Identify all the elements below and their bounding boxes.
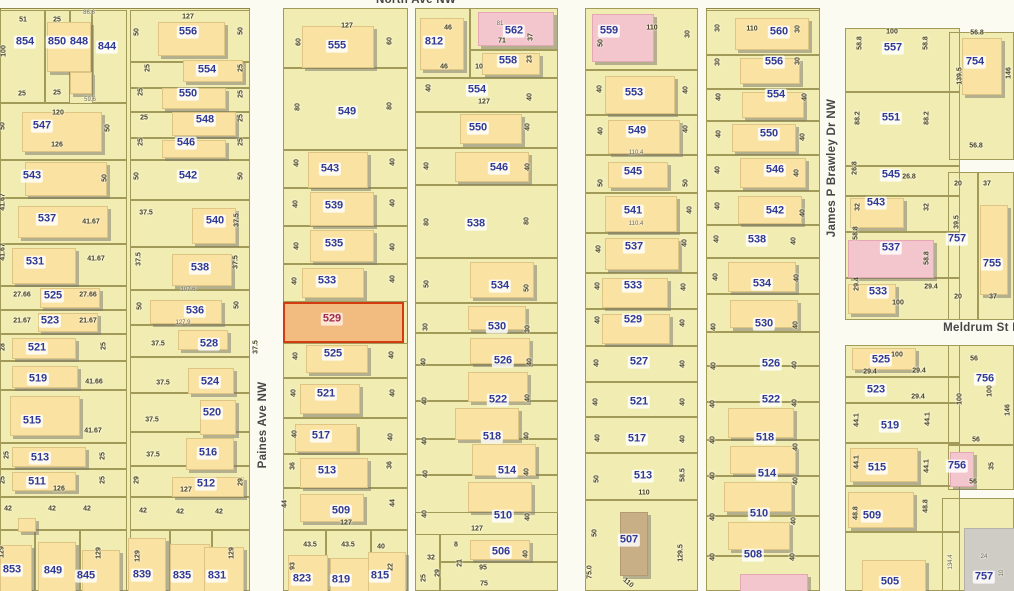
dimension-label: 43.5 bbox=[303, 542, 317, 549]
parcel-number: 512 bbox=[195, 478, 217, 491]
dimension-label: 127 bbox=[341, 23, 353, 30]
dimension-label: 40 bbox=[710, 553, 717, 561]
parcel-number: 531 bbox=[24, 256, 46, 269]
dimension-label: 26.8 bbox=[852, 161, 859, 175]
dimension-label: 40 bbox=[792, 361, 799, 369]
dimension-label: 36 bbox=[387, 461, 394, 469]
dimension-label: 41.67 bbox=[84, 428, 102, 435]
parcel-number: 520 bbox=[201, 407, 223, 420]
dimension-label: 40 bbox=[715, 166, 722, 174]
dimension-label: 40 bbox=[525, 123, 532, 131]
dimension-label: 25 bbox=[101, 342, 108, 350]
parcel-number: 849 bbox=[42, 565, 64, 578]
parcel-number: 522 bbox=[487, 394, 509, 407]
parcel-number: 549 bbox=[336, 106, 358, 119]
dimension-label: 40 bbox=[800, 209, 807, 217]
dimension-label: 50 bbox=[594, 475, 601, 483]
parcel-number: 513 bbox=[632, 470, 654, 483]
parcel-number: 543 bbox=[319, 163, 341, 176]
parcel-number: 848 bbox=[68, 36, 90, 49]
dimension-label: 40 bbox=[802, 93, 809, 101]
building bbox=[728, 522, 790, 550]
dimension-label: 37.5 bbox=[145, 417, 159, 424]
dimension-label: 40 bbox=[594, 359, 601, 367]
dimension-label: 88.2 bbox=[855, 111, 862, 125]
dimension-label: 127 bbox=[182, 14, 194, 21]
dimension-label: 27.66 bbox=[13, 292, 31, 299]
dimension-label: 50 bbox=[134, 28, 141, 36]
dimension-label: 40 bbox=[710, 513, 717, 521]
dimension-label: 40 bbox=[527, 93, 534, 101]
parcel-number: 754 bbox=[964, 56, 986, 69]
parcel-number: 845 bbox=[75, 570, 97, 583]
dimension-label: 25 bbox=[238, 64, 245, 72]
dimension-label: 40 bbox=[680, 360, 687, 368]
parcel-number: 509 bbox=[861, 510, 883, 523]
dimension-label: 48.8 bbox=[923, 499, 930, 513]
dimension-label: 56 bbox=[969, 479, 977, 486]
parcel-number: 530 bbox=[753, 318, 775, 331]
dimension-label: 43.5 bbox=[341, 542, 355, 549]
dimension-label: 50 bbox=[134, 172, 141, 180]
dimension-label: 41.67 bbox=[87, 256, 105, 263]
building bbox=[740, 574, 808, 591]
dimension-label: 40 bbox=[293, 352, 300, 360]
dimension-label: 40 bbox=[681, 283, 688, 291]
dimension-label: 127 bbox=[478, 99, 490, 106]
dimension-label: 40 bbox=[525, 163, 532, 171]
dimension-label: 50 bbox=[105, 124, 112, 132]
dimension-label: 58.8 bbox=[924, 251, 931, 265]
dimension-label: 20 bbox=[954, 181, 962, 188]
dimension-label: 25 bbox=[4, 451, 11, 459]
dimension-label: 50 bbox=[137, 302, 144, 310]
dimension-label: 40 bbox=[683, 125, 690, 133]
dimension-label: 40 bbox=[711, 323, 718, 331]
parcel-545[interactable] bbox=[845, 166, 960, 196]
dimension-label: 30 bbox=[715, 58, 722, 66]
dimension-label: 95 bbox=[479, 565, 487, 572]
dimension-label: 60 bbox=[296, 38, 303, 46]
dimension-label: 42 bbox=[139, 508, 147, 515]
parcel-number: 554 bbox=[196, 64, 218, 77]
dimension-label: 40 bbox=[388, 433, 395, 441]
dimension-label: 40 bbox=[390, 275, 397, 283]
parcel-number: 529 bbox=[622, 314, 644, 327]
parcel-number: 546 bbox=[764, 164, 786, 177]
parcel-523[interactable] bbox=[845, 377, 960, 403]
dimension-label: 28 bbox=[0, 343, 7, 351]
dimension-label: 88.2 bbox=[924, 111, 931, 125]
dimension-label: 30 bbox=[525, 325, 532, 333]
dimension-label: 42 bbox=[4, 506, 12, 513]
parcel-map-canvas[interactable]: 8548508488445475435375315255235215195155… bbox=[0, 0, 1014, 591]
dimension-label: 24 bbox=[981, 554, 988, 560]
highlighted-parcel-number: 529 bbox=[321, 313, 343, 326]
dimension-label: 40 bbox=[716, 130, 723, 138]
parcel-number: 534 bbox=[751, 278, 773, 291]
parcel-number: 525 bbox=[42, 290, 64, 303]
parcel-number: 519 bbox=[27, 373, 49, 386]
parcel-number: 518 bbox=[481, 431, 503, 444]
parcel-number: 518 bbox=[754, 432, 776, 445]
parcel-number: 831 bbox=[206, 570, 228, 583]
parcel-number: 535 bbox=[323, 238, 345, 251]
parcel-number: 556 bbox=[763, 56, 785, 69]
dimension-label: 60 bbox=[387, 37, 394, 45]
dimension-label: 58.5 bbox=[680, 468, 687, 482]
dimension-label: 40 bbox=[426, 84, 433, 92]
parcel-number: 533 bbox=[867, 286, 889, 299]
dimension-label: 107.6 bbox=[180, 287, 195, 293]
parcel-number: 554 bbox=[466, 84, 488, 97]
parcel-number: 812 bbox=[423, 36, 445, 49]
dimension-label: 40 bbox=[390, 158, 397, 166]
parcel-number: 513 bbox=[316, 465, 338, 478]
parcel-number: 538 bbox=[465, 218, 487, 231]
dimension-label: 129 bbox=[0, 546, 6, 558]
dimension-label: 80 bbox=[295, 103, 302, 111]
dimension-label: 29.4 bbox=[911, 394, 925, 401]
dimension-label: 58.8 bbox=[857, 36, 864, 50]
dimension-label: 40 bbox=[792, 399, 799, 407]
dimension-label: 37.5 bbox=[253, 340, 260, 354]
dimension-label: 40 bbox=[525, 513, 532, 521]
dimension-label: 40 bbox=[422, 437, 429, 445]
parcel-844[interactable] bbox=[92, 10, 127, 103]
parcel-number: 540 bbox=[204, 215, 226, 228]
dimension-label: 139.5 bbox=[957, 67, 964, 85]
dimension-label: 40 bbox=[292, 277, 299, 285]
dimension-label: 37.5 bbox=[151, 341, 165, 348]
dimension-label: 50 bbox=[238, 172, 245, 180]
dimension-label: 29.4 bbox=[924, 284, 938, 291]
dimension-label: 51 bbox=[19, 17, 27, 24]
dimension-label: 30 bbox=[715, 24, 722, 32]
dimension-label: 25 bbox=[238, 90, 245, 98]
dimension-label: 40 bbox=[680, 435, 687, 443]
parcel-number: 551 bbox=[880, 112, 902, 125]
parcel-number: 537 bbox=[880, 242, 902, 255]
building bbox=[468, 482, 532, 512]
dimension-label: 30 bbox=[685, 30, 692, 38]
dimension-label: 25 bbox=[0, 476, 7, 484]
dimension-label: 40 bbox=[377, 544, 385, 551]
dimension-label: 40 bbox=[390, 389, 397, 397]
parcel-number: 521 bbox=[315, 388, 337, 401]
dimension-label: 40 bbox=[595, 434, 602, 442]
dimension-label: 21.67 bbox=[13, 318, 31, 325]
dimension-label: 40 bbox=[421, 358, 428, 366]
building bbox=[128, 538, 166, 591]
dimension-label: 129 bbox=[229, 547, 236, 559]
dimension-label: 56.8 bbox=[969, 143, 983, 150]
street-label: Paines Ave NW bbox=[257, 382, 269, 469]
parcel-number: 508 bbox=[742, 549, 764, 562]
parcel-number: 538 bbox=[189, 262, 211, 275]
dimension-label: 50 bbox=[524, 284, 531, 292]
parcel-number: 517 bbox=[626, 433, 648, 446]
parcel-number: 545 bbox=[880, 169, 902, 182]
dimension-label: 30 bbox=[423, 323, 430, 331]
dimension-label: 86.6 bbox=[83, 10, 95, 16]
dimension-label: 42 bbox=[48, 506, 56, 513]
dimension-label: 29.4 bbox=[912, 368, 926, 375]
dimension-label: 100 bbox=[886, 29, 898, 36]
parcel-number: 511 bbox=[26, 476, 48, 489]
dimension-label: 40 bbox=[294, 159, 301, 167]
dimension-label: 25 bbox=[100, 452, 107, 460]
dimension-label: 46 bbox=[444, 25, 452, 32]
parcel-number: 556 bbox=[177, 26, 199, 39]
dimension-label: 37 bbox=[983, 181, 991, 188]
parcel-519[interactable] bbox=[845, 403, 960, 443]
dimension-label: 40 bbox=[794, 169, 801, 177]
dimension-label: 37.5 bbox=[156, 380, 170, 387]
parcel-number: 537 bbox=[36, 213, 58, 226]
parcel-number: 510 bbox=[492, 510, 514, 523]
dimension-label: 40 bbox=[710, 400, 717, 408]
parcel-757[interactable] bbox=[948, 172, 978, 320]
parcel-number: 835 bbox=[171, 570, 193, 583]
dimension-label: 37 bbox=[989, 294, 997, 301]
parcel-number: 844 bbox=[96, 41, 118, 54]
dimension-label: 46 bbox=[440, 64, 448, 71]
dimension-label: 25 bbox=[421, 574, 428, 582]
dimension-label: 41.67 bbox=[0, 243, 7, 261]
parcel-number: 541 bbox=[622, 205, 644, 218]
dimension-label: 40 bbox=[291, 389, 298, 397]
parcel-number: 542 bbox=[177, 170, 199, 183]
dimension-label: 40 bbox=[791, 237, 798, 245]
street-label: North Ave NW bbox=[376, 0, 456, 6]
dimension-label: 44.1 bbox=[854, 413, 861, 427]
dimension-label: 134.4 bbox=[948, 554, 954, 569]
dimension-label: 40 bbox=[794, 274, 801, 282]
dimension-label: 100 bbox=[987, 385, 994, 397]
dimension-label: 37 bbox=[528, 33, 535, 41]
dimension-label: 40 bbox=[793, 477, 800, 485]
dimension-label: 80 bbox=[424, 218, 431, 226]
dimension-label: 40 bbox=[682, 239, 689, 247]
parcel-number: 523 bbox=[39, 315, 61, 328]
dimension-label: 26.8 bbox=[902, 174, 916, 181]
dimension-label: 129 bbox=[96, 547, 103, 559]
dimension-label: 40 bbox=[593, 398, 600, 406]
parcel-number: 549 bbox=[626, 125, 648, 138]
dimension-label: 23 bbox=[527, 55, 534, 63]
dimension-label: 40 bbox=[523, 550, 530, 558]
dimension-label: 30 bbox=[795, 25, 802, 33]
dimension-label: 56.8 bbox=[970, 30, 984, 37]
dimension-label: 40 bbox=[714, 235, 721, 243]
dimension-label: 110.4 bbox=[629, 150, 644, 156]
dimension-label: 40 bbox=[716, 93, 723, 101]
dimension-label: 126 bbox=[53, 486, 65, 493]
parcel-number: 823 bbox=[291, 573, 313, 586]
parcel-number: 839 bbox=[131, 569, 153, 582]
dimension-label: 21 bbox=[457, 559, 464, 567]
parcel-number: 533 bbox=[316, 275, 338, 288]
dimension-label: 40 bbox=[710, 472, 717, 480]
parcel-number: 757 bbox=[946, 233, 968, 246]
dimension-label: 40 bbox=[422, 510, 429, 518]
parcel-number: 515 bbox=[866, 462, 888, 475]
dimension-label: 50 bbox=[598, 39, 605, 47]
dimension-label: 40 bbox=[390, 199, 397, 207]
dimension-label: 50 bbox=[683, 179, 690, 187]
parcel-number: 547 bbox=[31, 120, 53, 133]
dimension-label: 110.4 bbox=[629, 221, 644, 227]
dimension-label: 56 bbox=[970, 356, 978, 363]
dimension-label: 127 bbox=[471, 526, 483, 533]
parcel-number: 756 bbox=[974, 373, 996, 386]
dimension-label: 32 bbox=[855, 203, 862, 211]
dimension-label: 50 bbox=[592, 529, 599, 537]
dimension-label: 25 bbox=[53, 90, 61, 97]
dimension-label: 40 bbox=[595, 282, 602, 290]
dimension-label: 25 bbox=[53, 17, 61, 24]
parcel-number: 755 bbox=[981, 258, 1003, 271]
dimension-label: 110 bbox=[746, 26, 757, 33]
dimension-label: 25 bbox=[140, 115, 148, 122]
dimension-label: 25 bbox=[100, 476, 107, 484]
dimension-label: 100 bbox=[891, 352, 903, 359]
dimension-label: 110 bbox=[646, 25, 657, 32]
dimension-label: 50 bbox=[234, 301, 241, 309]
parcel-number: 757 bbox=[973, 571, 995, 584]
parcel-number: 558 bbox=[497, 55, 519, 68]
dimension-label: 29.4 bbox=[854, 277, 861, 291]
dimension-label: 29 bbox=[238, 478, 245, 486]
parcel-number: 539 bbox=[323, 200, 345, 213]
dimension-label: 40 bbox=[595, 316, 602, 324]
dimension-label: 37.5 bbox=[146, 452, 160, 459]
parcel-number: 553 bbox=[623, 87, 645, 100]
dimension-label: 27.66 bbox=[79, 292, 97, 299]
dimension-label: 29 bbox=[134, 476, 141, 484]
parcel-number: 543 bbox=[865, 197, 887, 210]
dimension-label: 120 bbox=[52, 110, 64, 117]
dimension-label: 37.5 bbox=[136, 252, 143, 266]
dimension-label: 40 bbox=[292, 430, 299, 438]
lot[interactable] bbox=[130, 497, 250, 530]
dimension-label: 40 bbox=[525, 394, 532, 402]
dimension-label: 10 bbox=[475, 64, 483, 71]
dimension-label: 127 bbox=[180, 487, 192, 494]
parcel-number: 526 bbox=[760, 358, 782, 371]
dimension-label: 80 bbox=[524, 217, 531, 225]
dimension-label: 100 bbox=[957, 393, 964, 405]
building bbox=[18, 518, 36, 532]
parcel-number: 519 bbox=[879, 420, 901, 433]
dimension-label: 44.1 bbox=[854, 455, 861, 469]
parcel-number: 546 bbox=[175, 137, 197, 150]
parcel-number: 853 bbox=[1, 564, 23, 577]
dimension-label: 40 bbox=[293, 200, 300, 208]
dimension-label: 40 bbox=[790, 553, 797, 561]
dimension-label: 50 bbox=[0, 122, 7, 130]
dimension-label: 50 bbox=[102, 174, 109, 182]
parcel-number: 815 bbox=[369, 570, 391, 583]
parcel-number: 559 bbox=[598, 25, 620, 38]
dimension-label: 71 bbox=[498, 38, 506, 45]
parcel-number: 513 bbox=[29, 452, 51, 465]
dimension-label: 37.5 bbox=[233, 255, 240, 269]
dimension-label: 40 bbox=[791, 517, 798, 525]
lot[interactable] bbox=[415, 534, 440, 591]
dimension-label: 146 bbox=[1005, 404, 1012, 416]
parcel-number: 517 bbox=[310, 430, 332, 443]
dimension-label: 41.67 bbox=[0, 193, 7, 211]
dimension-label: 25 bbox=[18, 91, 26, 98]
parcel-number: 537 bbox=[623, 241, 645, 254]
dimension-label: 32 bbox=[924, 203, 931, 211]
parcel-number: 756 bbox=[946, 460, 968, 473]
dimension-label: 50 bbox=[238, 27, 245, 35]
dimension-label: 42 bbox=[83, 506, 91, 513]
dimension-label: 100 bbox=[1, 45, 8, 57]
dimension-label: 40 bbox=[711, 362, 718, 370]
dimension-label: 25 bbox=[138, 88, 145, 96]
dimension-label: 40 bbox=[680, 398, 687, 406]
dimension-label: 58.8 bbox=[923, 36, 930, 50]
dimension-label: 56 bbox=[972, 437, 980, 444]
dimension-label: 21.67 bbox=[79, 318, 97, 325]
dimension-label: 25 bbox=[138, 138, 145, 146]
parcel-number: 533 bbox=[622, 280, 644, 293]
dimension-label: 40 bbox=[524, 432, 531, 440]
dimension-label: 93 bbox=[290, 562, 297, 570]
parcel-number: 543 bbox=[21, 170, 43, 183]
street-label: James P Brawley Dr NW bbox=[826, 99, 838, 237]
dimension-label: 127 bbox=[340, 520, 352, 527]
dimension-label: 25 bbox=[238, 138, 245, 146]
parcel-number: 542 bbox=[764, 205, 786, 218]
dimension-label: 40 bbox=[680, 319, 687, 327]
dimension-label: 42 bbox=[176, 509, 184, 516]
dimension-label: 40 bbox=[424, 162, 431, 170]
parcel-number: 534 bbox=[489, 280, 511, 293]
dimension-label: 41.67 bbox=[82, 219, 100, 226]
dimension-label: 40 bbox=[800, 133, 807, 141]
parcel-number: 536 bbox=[184, 305, 206, 318]
dimension-label: 59.6 bbox=[84, 97, 96, 103]
dimension-label: 40 bbox=[683, 86, 690, 94]
parcel-number: 510 bbox=[748, 508, 770, 521]
parcel-number: 514 bbox=[756, 468, 778, 481]
dimension-label: 25 bbox=[145, 64, 152, 72]
dimension-label: 40 bbox=[389, 351, 396, 359]
dimension-label: 40 bbox=[713, 273, 720, 281]
parcel-529[interactable] bbox=[283, 302, 404, 343]
parcel-number: 505 bbox=[879, 576, 901, 589]
dimension-label: 40 bbox=[390, 243, 397, 251]
dimension-label: 75 bbox=[480, 581, 488, 588]
dimension-label: 29.4 bbox=[863, 369, 877, 376]
parcel-number: 525 bbox=[322, 348, 344, 361]
parcel-number: 546 bbox=[488, 162, 510, 175]
dimension-label: 39.5 bbox=[954, 215, 961, 229]
parcel-number: 562 bbox=[503, 25, 525, 38]
parcel-551[interactable] bbox=[845, 92, 960, 166]
parcel-number: 548 bbox=[194, 114, 216, 127]
dimension-label: 40 bbox=[294, 242, 301, 250]
dimension-label: 75.0 bbox=[587, 565, 594, 579]
parcel-number: 545 bbox=[622, 166, 644, 179]
dimension-label: 37.5 bbox=[139, 210, 153, 217]
dimension-label: 29 bbox=[435, 569, 442, 577]
